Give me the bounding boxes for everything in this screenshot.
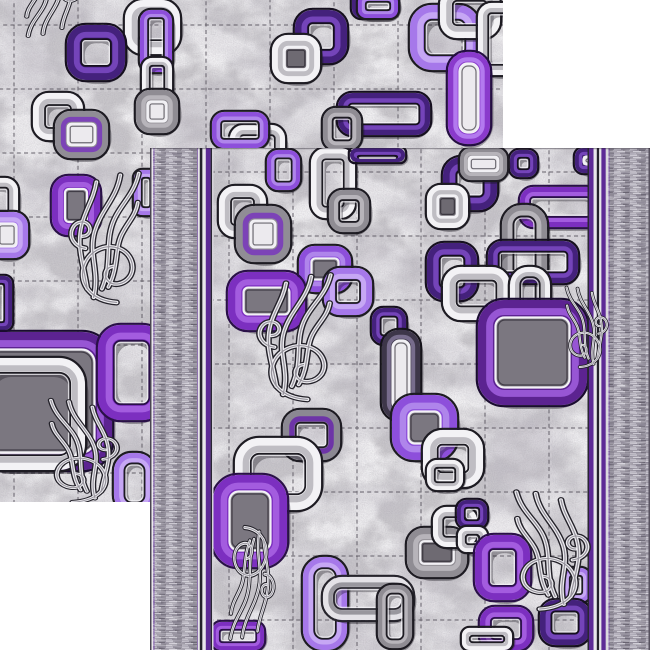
carpet-left-edge <box>150 148 151 650</box>
chain-ring-motif <box>135 89 179 134</box>
chain-ring-motif <box>357 0 399 19</box>
chain-ring-motif <box>0 211 29 259</box>
chain-ring-motif <box>349 147 406 163</box>
carpet-product-photo: Product photo of a grey marbled carpet r… <box>0 0 650 650</box>
chain-ring-motif <box>459 147 508 181</box>
chain-ring-motif <box>235 205 291 263</box>
chain-ring-motif <box>54 110 109 159</box>
carpet-pattern-canvas <box>0 0 650 650</box>
chain-ring-motif <box>271 34 321 83</box>
chain-ring-motif <box>0 275 13 331</box>
front-carpet <box>146 144 650 650</box>
chain-ring-motif <box>461 627 513 650</box>
chain-ring-motif <box>426 184 469 229</box>
chain-ring-motif <box>447 51 491 145</box>
carpet-top-edge <box>150 148 650 149</box>
